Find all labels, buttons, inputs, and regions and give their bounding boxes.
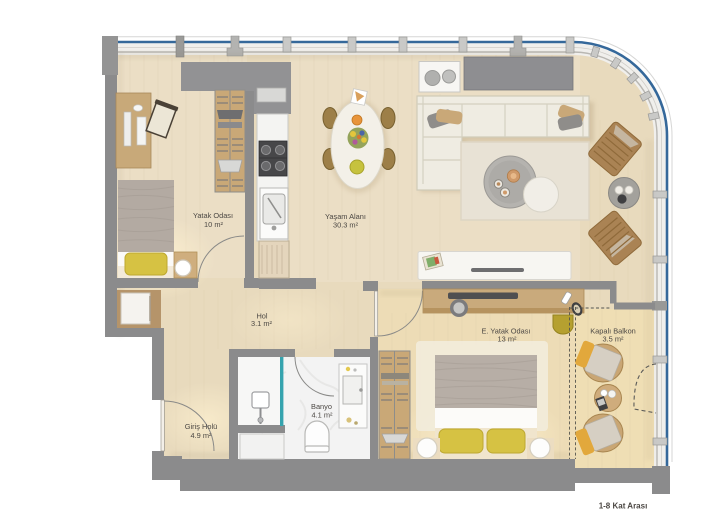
svg-text:Giriş Holü: Giriş Holü <box>185 422 217 431</box>
svg-text:30.3 m²: 30.3 m² <box>333 220 359 229</box>
svg-text:4.9 m²: 4.9 m² <box>191 431 212 440</box>
svg-text:10 m²: 10 m² <box>204 220 223 229</box>
svg-text:3.1 m²: 3.1 m² <box>251 319 272 328</box>
svg-text:4.1 m²: 4.1 m² <box>312 410 333 419</box>
svg-text:Yatak Odası: Yatak Odası <box>193 211 233 220</box>
svg-text:13 m²: 13 m² <box>498 334 517 343</box>
svg-text:3.5 m²: 3.5 m² <box>603 334 624 343</box>
svg-text:1-8 Kat Arası: 1-8 Kat Arası <box>599 502 648 511</box>
